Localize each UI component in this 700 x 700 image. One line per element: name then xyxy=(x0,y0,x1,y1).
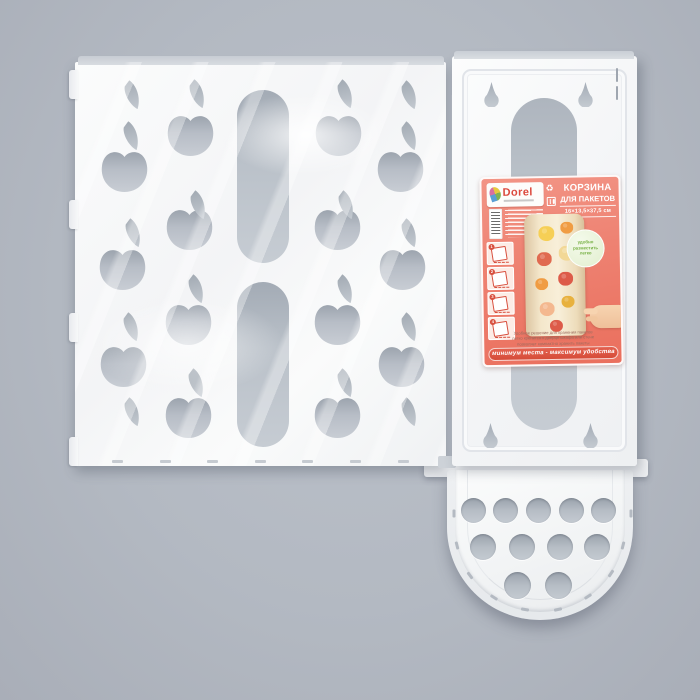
basket-apple-hole xyxy=(535,278,548,290)
basket-apple-hole xyxy=(540,302,555,316)
label-description: Удобное решение для хранения пакетовлегк… xyxy=(500,329,606,347)
groove-dash xyxy=(616,68,618,82)
basket-apple-hole xyxy=(538,226,554,241)
product-label: Dorel ♻ КОРЗИНА ДЛЯ ПАКЕТОВ 16×13,5×37,5… xyxy=(479,175,623,367)
basket-apple-hole xyxy=(558,272,573,286)
hand-illustration xyxy=(590,305,624,329)
back-panel: Dorel ♻ КОРЗИНА ДЛЯ ПАКЕТОВ 16×13,5×37,5… xyxy=(452,56,637,466)
step-number: 2 xyxy=(489,269,495,275)
basket-apple-hole xyxy=(537,252,552,266)
step-number: 4 xyxy=(490,319,496,325)
groove-dash xyxy=(616,86,618,100)
assembly-step-thumbnail: 2 xyxy=(487,267,514,290)
product-illustration xyxy=(514,207,622,349)
product-photo: Dorel ♻ КОРЗИНА ДЛЯ ПАКЕТОВ 16×13,5×37,5… xyxy=(0,0,700,700)
basket-apple-hole xyxy=(560,222,573,234)
assembly-step-thumbnail: 1 xyxy=(486,242,513,265)
badge-text-line: легко xyxy=(568,250,604,256)
label-slogan-banner: минимум места - максимум удобства xyxy=(488,346,618,361)
step-number: 1 xyxy=(489,244,495,250)
step-number: 3 xyxy=(489,294,495,300)
basket-apple-hole xyxy=(561,296,574,308)
assembly-step-thumbnail: 3 xyxy=(487,292,514,315)
